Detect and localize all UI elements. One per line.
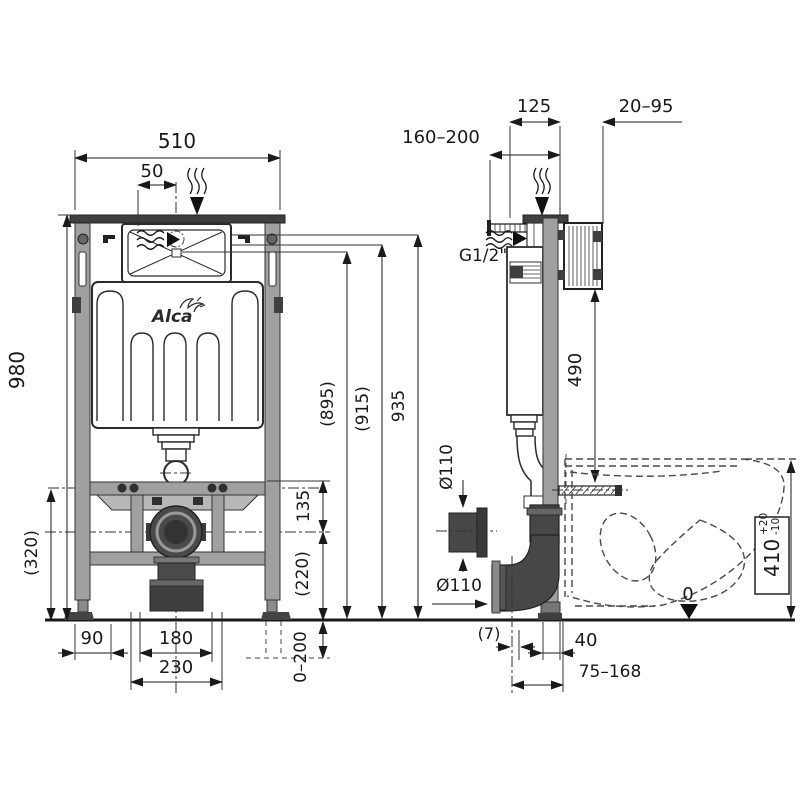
front-view: Alca bbox=[5, 129, 418, 694]
flush-valve bbox=[153, 428, 199, 485]
dim-label-490: 490 bbox=[565, 353, 586, 387]
dim-label-895: (895) bbox=[318, 381, 338, 427]
dim-pipe-diameter-side: Ø110 bbox=[437, 444, 463, 572]
dim-label-320: (320) bbox=[22, 530, 42, 576]
right-foot bbox=[261, 612, 291, 620]
dim-label-980: 980 bbox=[5, 351, 29, 389]
installation-frame-technical-drawing: Alca bbox=[0, 0, 800, 800]
dim-220: (220) bbox=[293, 532, 323, 620]
thread-label: G1/2" bbox=[459, 246, 507, 266]
side-view: 160–200 125 20–95 bbox=[402, 96, 796, 694]
outlet-pipe-sleeve bbox=[436, 508, 497, 557]
flush-plate-opening bbox=[103, 224, 250, 282]
dim-label-230: 230 bbox=[159, 657, 193, 678]
dim-label-160-200: 160–200 bbox=[402, 127, 480, 148]
left-foot bbox=[64, 612, 94, 620]
cistern-side bbox=[507, 215, 568, 508]
dim-label-20-95: 20–95 bbox=[619, 96, 674, 117]
dim-label-410-minus: -10 bbox=[770, 518, 782, 535]
dim-label-410: 410 bbox=[760, 539, 784, 577]
right-clamp-icon bbox=[238, 235, 250, 243]
wc-mounting-bracket bbox=[552, 454, 628, 508]
water-supply-arrow-icon-side bbox=[534, 168, 551, 216]
drain-elbow-side bbox=[492, 505, 562, 613]
dim-0-200: 0–200 bbox=[291, 622, 323, 683]
dim-160-200: 160–200 bbox=[402, 127, 560, 155]
dim-label-7: (7) bbox=[478, 624, 501, 643]
dim-pipe-diameter-outlet: Ø110 bbox=[432, 576, 487, 604]
dim-90: 90 bbox=[58, 624, 128, 660]
dim-20-95: 20–95 bbox=[603, 96, 682, 122]
dim-frame-width: 510 bbox=[75, 129, 280, 210]
dim-label-125: 125 bbox=[517, 96, 551, 117]
dia-label-110-side: Ø110 bbox=[437, 444, 457, 490]
dim-label-50: 50 bbox=[141, 161, 164, 182]
dia-label-110-outlet: Ø110 bbox=[436, 576, 482, 596]
brand-text: Alca bbox=[150, 307, 193, 327]
adjustable-foot-extension bbox=[246, 621, 330, 658]
dim-125: 125 bbox=[510, 96, 560, 122]
dim-490: 490 bbox=[565, 290, 595, 482]
technical-drawing-page: Alca bbox=[0, 0, 800, 800]
dim-label-510: 510 bbox=[158, 129, 196, 153]
dim-label-915: (915) bbox=[353, 386, 373, 432]
dim-label-410-plus: +20 bbox=[758, 513, 770, 535]
water-supply-arrow-icon bbox=[188, 168, 207, 215]
left-clamp-icon bbox=[103, 235, 115, 243]
dim-label-90: 90 bbox=[81, 628, 104, 649]
dim-label-75-168: 75–168 bbox=[579, 662, 642, 682]
dim-320: (320) bbox=[22, 490, 51, 620]
wall-anchor-plate bbox=[557, 223, 602, 289]
dim-label-180: 180 bbox=[159, 628, 193, 649]
dim-label-0-200: 0–200 bbox=[291, 631, 311, 683]
dim-seat-height: 410 +20 -10 bbox=[745, 459, 796, 618]
cistern-tank: Alca bbox=[92, 282, 263, 428]
dim-label-935: 935 bbox=[389, 390, 409, 422]
toilet-bowl-outline bbox=[565, 459, 784, 607]
dim-label-220: (220) bbox=[293, 551, 313, 597]
floor-level-label: 0 bbox=[682, 584, 693, 605]
drain-elbow-front bbox=[146, 506, 206, 611]
dim-label-40: 40 bbox=[575, 630, 598, 651]
dim-label-135: 135 bbox=[294, 490, 314, 522]
